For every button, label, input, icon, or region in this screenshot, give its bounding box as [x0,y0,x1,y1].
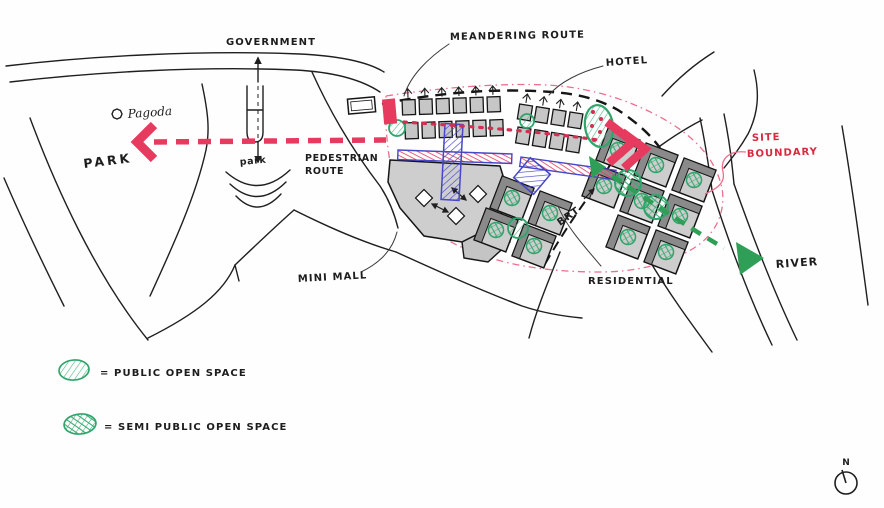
blue-hatch-vertical-link [441,124,463,201]
north-label: N [842,458,850,468]
label-pedestrian-route: ROUTE [305,166,344,177]
legend: = PUBLIC OPEN SPACE = SEMI PUBLIC OPEN S… [58,359,287,436]
label-hotel: HOTEL [605,55,648,69]
semi-public-open-space-swatch [63,413,97,436]
mini-mall-leader [361,232,397,272]
sketch-map: GOVERNMENT MEANDERING ROUTE HOTEL Pagoda… [0,0,884,508]
legend-item-semi-public-open-space: = SEMI PUBLIC OPEN SPACE [63,413,287,436]
label-river: RIVER [775,255,818,271]
route-gateway-marker [382,98,397,124]
red-dashed-route [154,140,386,142]
label-park-small: park [239,155,267,168]
pagoda-icon [112,109,122,119]
public-open-space-circle [508,218,528,238]
park-terraces [226,170,290,207]
route-arrow-west [137,125,154,159]
legend-label-public: = PUBLIC OPEN SPACE [100,368,247,379]
label-boundary: BOUNDARY [747,147,818,160]
government-axis [247,58,263,162]
label-residential: RESIDENTIAL [588,276,674,287]
legend-label-semi-public: = SEMI PUBLIC OPEN SPACE [104,422,287,433]
public-open-space-circle [520,114,534,128]
courtyard-block [606,215,650,259]
green-route-arrow-river [736,242,764,275]
label-mini-mall: MINI MALL [298,270,368,285]
public-open-space-swatch [58,359,90,382]
label-government: GOVERNMENT [226,37,316,48]
legend-item-public-open-space: = PUBLIC OPEN SPACE [58,359,247,382]
courtyard-block [644,230,688,274]
courtyard-block [672,158,716,202]
label-site: SITE [752,132,781,144]
hotel-leader [549,66,603,95]
north-indicator: N [835,458,857,494]
label-meandering-route: MEANDERING ROUTE [450,30,585,43]
label-park: PARK [83,150,133,171]
government-building [347,97,375,114]
label-pagoda: Pagoda [126,104,172,121]
sketch-canvas: GOVERNMENT MEANDERING ROUTE HOTEL Pagoda… [0,0,884,508]
label-pedestrian: PEDESTRIAN [305,153,378,164]
